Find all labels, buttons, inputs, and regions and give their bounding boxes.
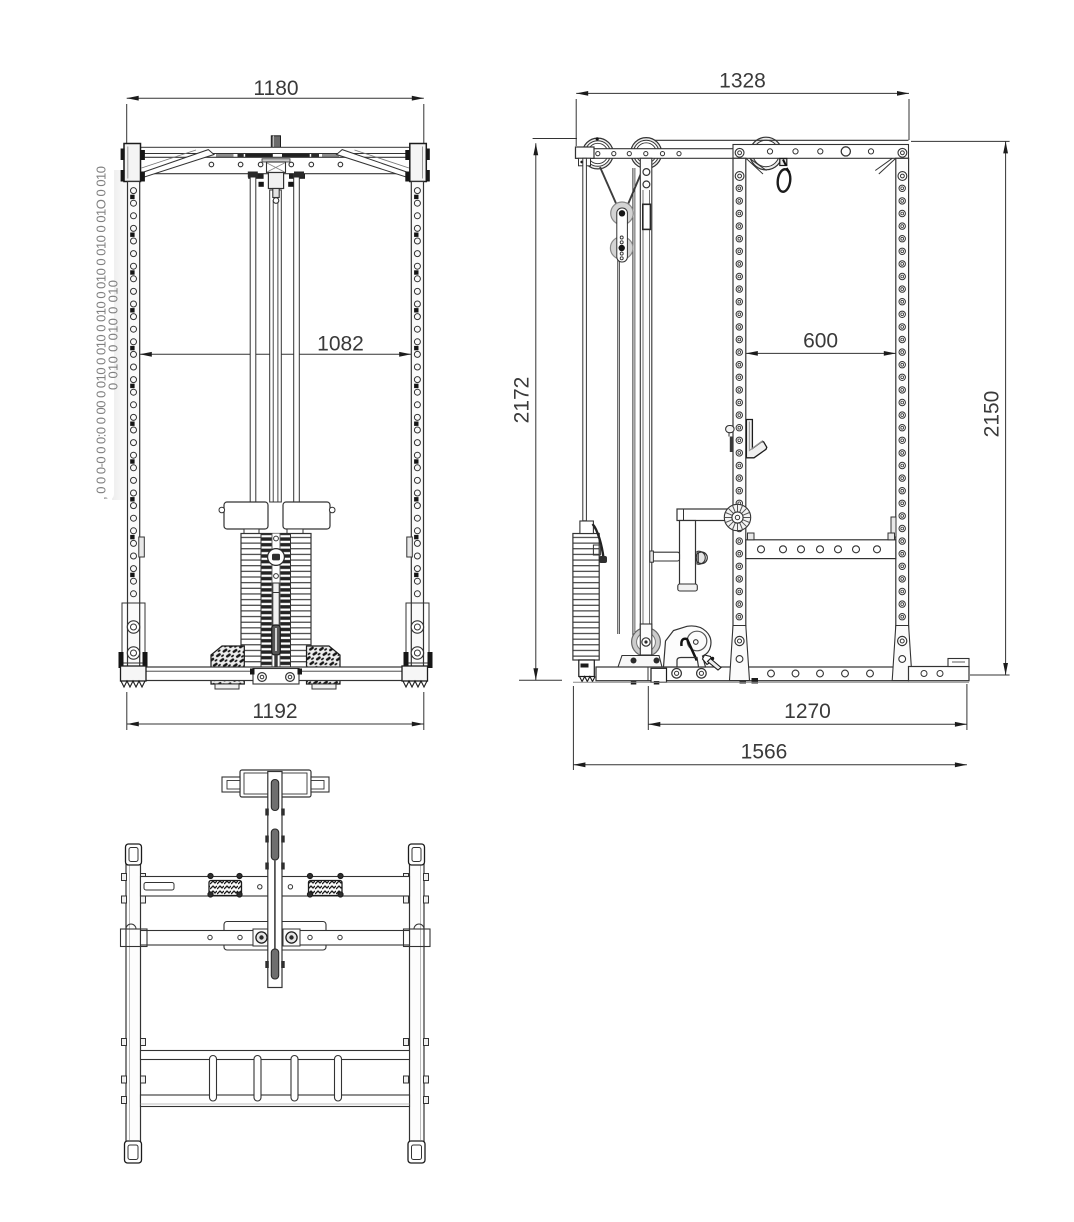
svg-text:2150: 2150: [981, 391, 1004, 438]
svg-text:1192: 1192: [252, 700, 297, 723]
svg-text:1270: 1270: [784, 700, 831, 723]
svg-text:2172: 2172: [511, 377, 534, 424]
svg-text:1082: 1082: [317, 333, 364, 356]
svg-text:1180: 1180: [253, 77, 298, 100]
svg-text:0 010 0 010 0 010: 0 010 0 010 0 010: [106, 280, 121, 390]
svg-text:600: 600: [803, 330, 838, 353]
svg-text:1328: 1328: [719, 70, 766, 93]
svg-text:1566: 1566: [741, 741, 788, 764]
